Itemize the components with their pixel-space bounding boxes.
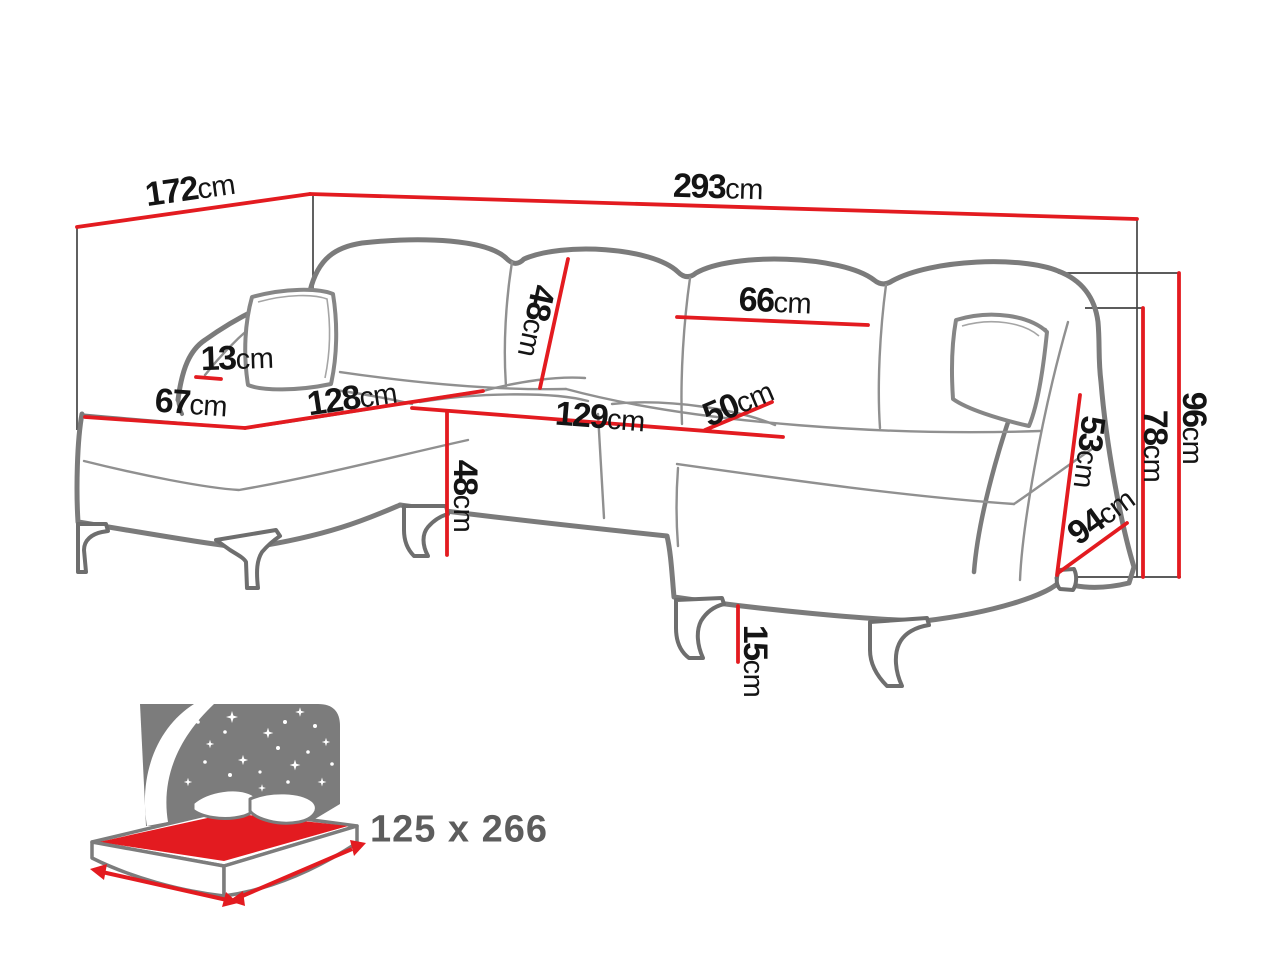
leg: [78, 524, 108, 572]
dimension-left-arm-height: 13cm: [200, 340, 274, 377]
dimension-unit: cm: [195, 169, 237, 206]
dimension-value: 13: [200, 339, 236, 378]
dimension-total-width: 293cm: [673, 169, 764, 205]
dimension-left-chaise-width: 67cm: [154, 384, 229, 423]
dimension-value: 96: [1175, 392, 1213, 427]
dimension-value: 15: [736, 625, 774, 660]
dimension-unit: cm: [357, 378, 399, 415]
leg: [216, 530, 280, 588]
sofa-legs: [78, 506, 1076, 686]
leg: [676, 598, 724, 658]
dimension-unit: cm: [773, 287, 812, 321]
dimension-value: 66: [738, 280, 774, 319]
dimension-unit: cm: [447, 495, 479, 533]
sofa-dimension-diagram: 172cm 293cm 66cm 48cm 13cm 67cm 128cm 12…: [0, 0, 1278, 958]
dimension-middle-seat-width: 129cm: [554, 397, 646, 438]
dimension-seat-height: 48cm: [448, 460, 482, 533]
bed-pillow: [250, 793, 316, 823]
dimension-unit: cm: [511, 316, 550, 360]
dimension-value: 172: [143, 169, 200, 214]
dimension-total-height: 96cm: [1177, 392, 1211, 465]
leg: [870, 618, 929, 686]
sleeping-area-size-label: 125 x 266: [370, 809, 548, 852]
dimension-value: 293: [673, 167, 726, 206]
dimension-value: 128: [305, 378, 362, 423]
dimension-value: 129: [554, 395, 609, 437]
dimension-unit: cm: [1067, 448, 1103, 489]
dimension-unit: cm: [1176, 427, 1208, 465]
pillow-seams: [258, 296, 1039, 378]
sofa-bed-sleeping-area-icon: [0, 704, 366, 907]
dimension-armrest-height: 78cm: [1138, 410, 1172, 483]
dimension-unit: cm: [188, 389, 228, 424]
dimension-unit: cm: [606, 404, 646, 439]
dimension-unit: cm: [725, 173, 764, 206]
dimension-unit: cm: [1137, 445, 1169, 483]
dimension-leg-height: 15cm: [738, 625, 772, 698]
leg: [404, 506, 448, 556]
dimension-value: 53: [1070, 414, 1112, 453]
dimension-value: 48: [446, 460, 484, 495]
dimension-back-cushion-width: 66cm: [738, 282, 812, 319]
dimension-unit: cm: [235, 343, 274, 376]
dimension-value: 67: [154, 382, 191, 422]
dimension-unit: cm: [737, 660, 769, 698]
dimension-value: 78: [1136, 410, 1174, 445]
